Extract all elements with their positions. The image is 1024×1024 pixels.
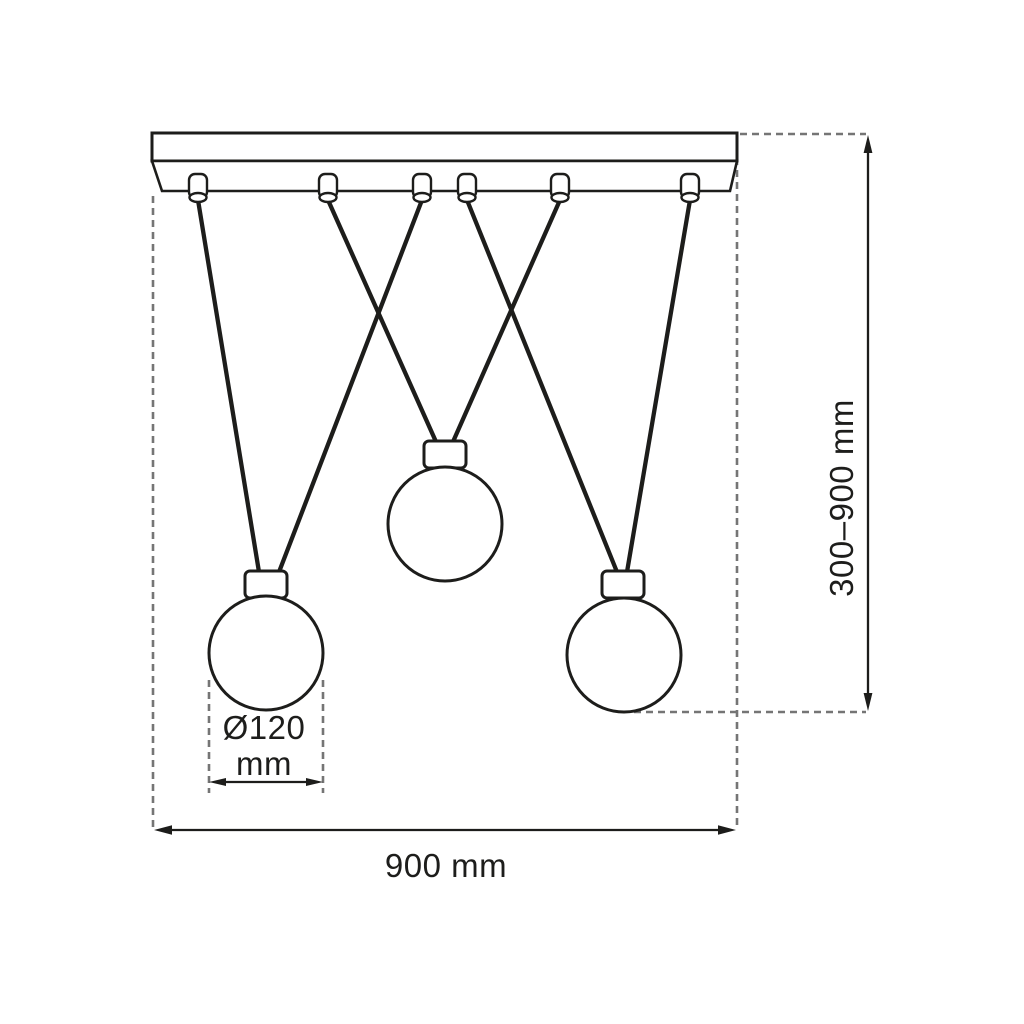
shade-diameter-unit: mm — [223, 746, 306, 782]
shade-diameter-label: Ø120 mm — [223, 710, 306, 782]
lamp-socket-middle — [424, 441, 466, 468]
lamp-socket-left — [245, 571, 287, 598]
cord-grip-4 — [458, 174, 476, 202]
glass-globe-right — [567, 598, 681, 712]
cord-grip-3 — [413, 174, 431, 202]
width-dimension-line — [154, 825, 736, 835]
suspension-cable-5 — [452, 200, 560, 444]
height-dimension-line — [864, 135, 873, 711]
cord-grip-2 — [319, 174, 337, 202]
suspension-cable-1 — [198, 200, 259, 572]
arrowhead-left-icon — [154, 825, 172, 835]
dimension-drawing-canvas: Ø120 mm 900 mm 300–900 mm — [0, 0, 1024, 1024]
arrowhead-down-icon — [864, 693, 873, 711]
shade-diameter-value: Ø120 — [223, 710, 306, 746]
arrowhead-right-icon — [306, 778, 323, 786]
cord-grip-5 — [551, 174, 569, 202]
glass-globe-middle — [388, 467, 502, 581]
suspension-height-label: 300–900 mm — [824, 399, 860, 597]
lamp-socket-right — [602, 571, 644, 598]
arrowhead-right-icon — [718, 825, 736, 835]
ceiling-canopy-skirt — [152, 161, 737, 191]
arrowhead-up-icon — [864, 135, 873, 153]
cord-grip-6 — [681, 174, 699, 202]
glass-globe-left — [209, 596, 323, 710]
cord-grip-1 — [189, 174, 207, 202]
suspension-cable-6 — [627, 200, 690, 572]
fixture-width-label: 900 mm — [385, 848, 507, 884]
ceiling-canopy-top — [152, 133, 737, 161]
lamp-technical-drawing — [0, 0, 1024, 1024]
lamp-outline-group — [152, 133, 737, 712]
